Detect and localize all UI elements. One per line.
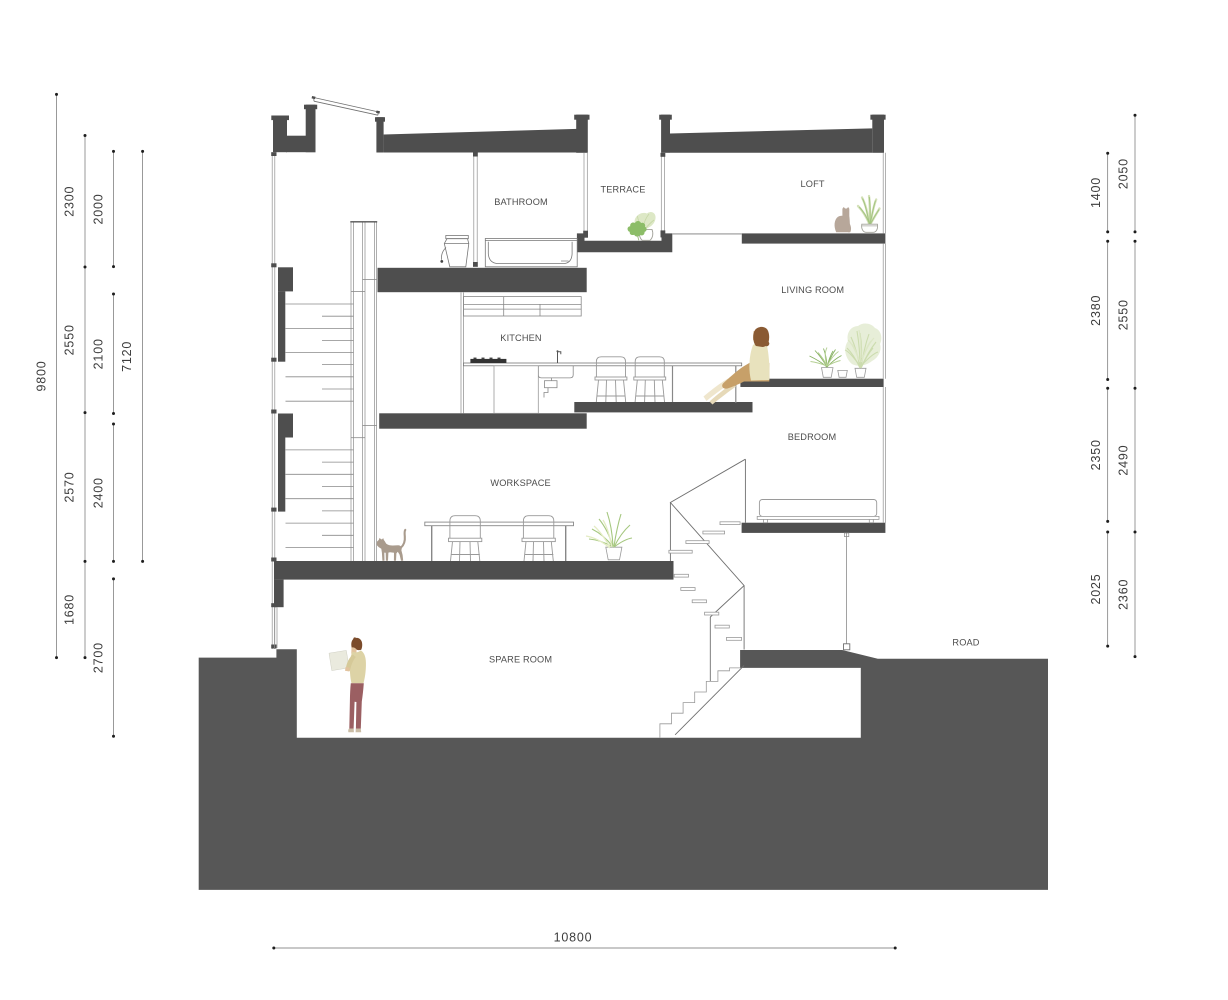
svg-text:WORKSPACE: WORKSPACE: [490, 478, 550, 488]
svg-text:2700: 2700: [92, 642, 106, 673]
svg-text:2550: 2550: [1117, 299, 1131, 330]
svg-text:10800: 10800: [554, 931, 593, 945]
svg-text:2100: 2100: [92, 338, 106, 369]
svg-text:1400: 1400: [1089, 177, 1103, 208]
svg-text:BEDROOM: BEDROOM: [788, 432, 837, 442]
svg-text:2490: 2490: [1117, 445, 1131, 476]
svg-text:2300: 2300: [63, 186, 77, 217]
svg-text:9800: 9800: [35, 360, 49, 391]
svg-text:1680: 1680: [63, 594, 77, 625]
svg-text:2360: 2360: [1117, 579, 1131, 610]
svg-text:2000: 2000: [92, 193, 106, 224]
svg-text:2400: 2400: [92, 477, 106, 508]
svg-text:2050: 2050: [1117, 158, 1131, 189]
svg-text:2025: 2025: [1089, 573, 1103, 604]
svg-text:2570: 2570: [63, 471, 77, 502]
svg-text:LIVING ROOM: LIVING ROOM: [781, 285, 844, 295]
svg-text:TERRACE: TERRACE: [601, 185, 646, 195]
svg-text:7120: 7120: [120, 341, 134, 372]
svg-text:2550: 2550: [63, 324, 77, 355]
svg-text:BATHROOM: BATHROOM: [494, 197, 548, 207]
svg-text:2380: 2380: [1089, 295, 1103, 326]
svg-text:KITCHEN: KITCHEN: [500, 333, 541, 343]
svg-text:2350: 2350: [1089, 439, 1103, 470]
svg-text:ROAD: ROAD: [952, 638, 979, 648]
svg-text:LOFT: LOFT: [801, 179, 825, 189]
svg-text:SPARE ROOM: SPARE ROOM: [489, 655, 552, 665]
